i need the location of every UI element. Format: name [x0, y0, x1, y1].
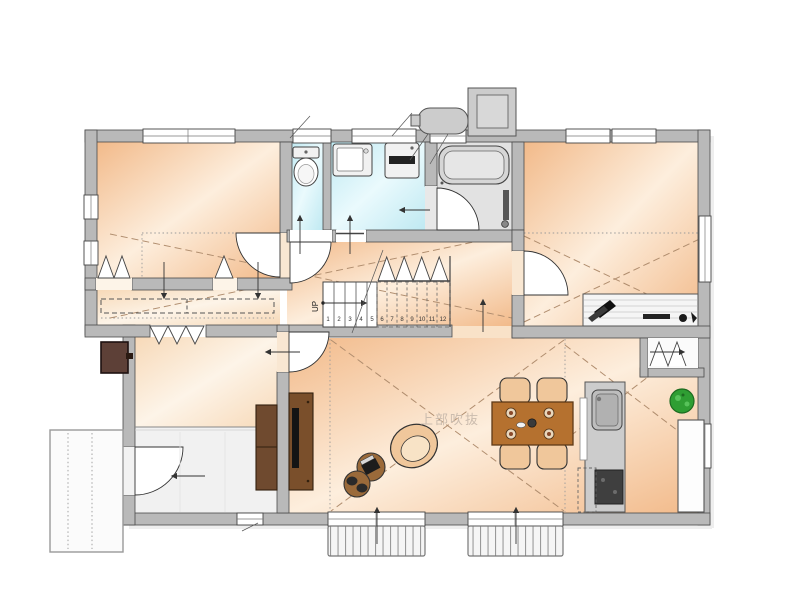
vanity-sink [333, 144, 372, 176]
desk [583, 294, 698, 326]
heat-pump-unit [468, 88, 516, 136]
washing-machine [385, 143, 419, 178]
keyboard [643, 314, 670, 319]
entrance-porch [50, 430, 123, 552]
toilet-fixture [293, 147, 319, 186]
dining-chair [500, 378, 530, 404]
tall-cabinet [678, 420, 704, 512]
stairs-up-label: UP [311, 301, 320, 312]
closet1-floor [97, 290, 280, 325]
bathtub-fixture [439, 146, 509, 185]
doorway-washroom [336, 230, 366, 242]
window-bedroom2-top-right [612, 129, 656, 143]
potted-plant [670, 389, 694, 413]
shoe-cabinet [256, 405, 277, 490]
window-bedroom2-right [699, 216, 711, 282]
doorway-bedroom2 [512, 251, 524, 295]
window-bedroom1-left-upper [84, 195, 98, 219]
atrium-label: 上部吹抜 [420, 412, 480, 427]
window-ldk-deck2 [468, 512, 563, 526]
dining-chair [537, 443, 567, 469]
mouse [679, 314, 687, 322]
window-toilet-top [293, 129, 331, 143]
wood-deck-left [328, 526, 425, 556]
floor-plan-svg: UP 1 2 3 4 5 6 7 8 9 10 11 12 [0, 0, 800, 611]
window-ldk-deck1 [328, 512, 425, 526]
window-bedroom1-left-lower [84, 241, 98, 265]
svg-text:11: 11 [429, 317, 436, 323]
window-bedroom2-top-left [566, 129, 610, 143]
dining-chair [500, 443, 530, 469]
meter-box [101, 342, 133, 373]
hallway-ldk-opening-floor [452, 326, 512, 338]
svg-text:12: 12 [440, 317, 447, 323]
gas-stove [595, 470, 623, 504]
kitchen-counter [578, 382, 625, 512]
ottoman-cushions [344, 471, 370, 497]
television [292, 408, 299, 468]
window-washroom-top [352, 129, 416, 143]
wall-left-lower-b [123, 495, 135, 525]
doorway-bath [425, 186, 437, 230]
wall-left-upper [85, 130, 97, 335]
window-bedroom1-top [143, 129, 235, 143]
wood-deck-right [468, 526, 563, 556]
tv-board [289, 393, 313, 490]
dining-chair [537, 378, 567, 404]
hall-closet-slide-symbol [150, 326, 204, 344]
doorway-toilet [290, 230, 332, 242]
doorway-front [123, 447, 135, 495]
svg-text:10: 10 [419, 317, 426, 323]
